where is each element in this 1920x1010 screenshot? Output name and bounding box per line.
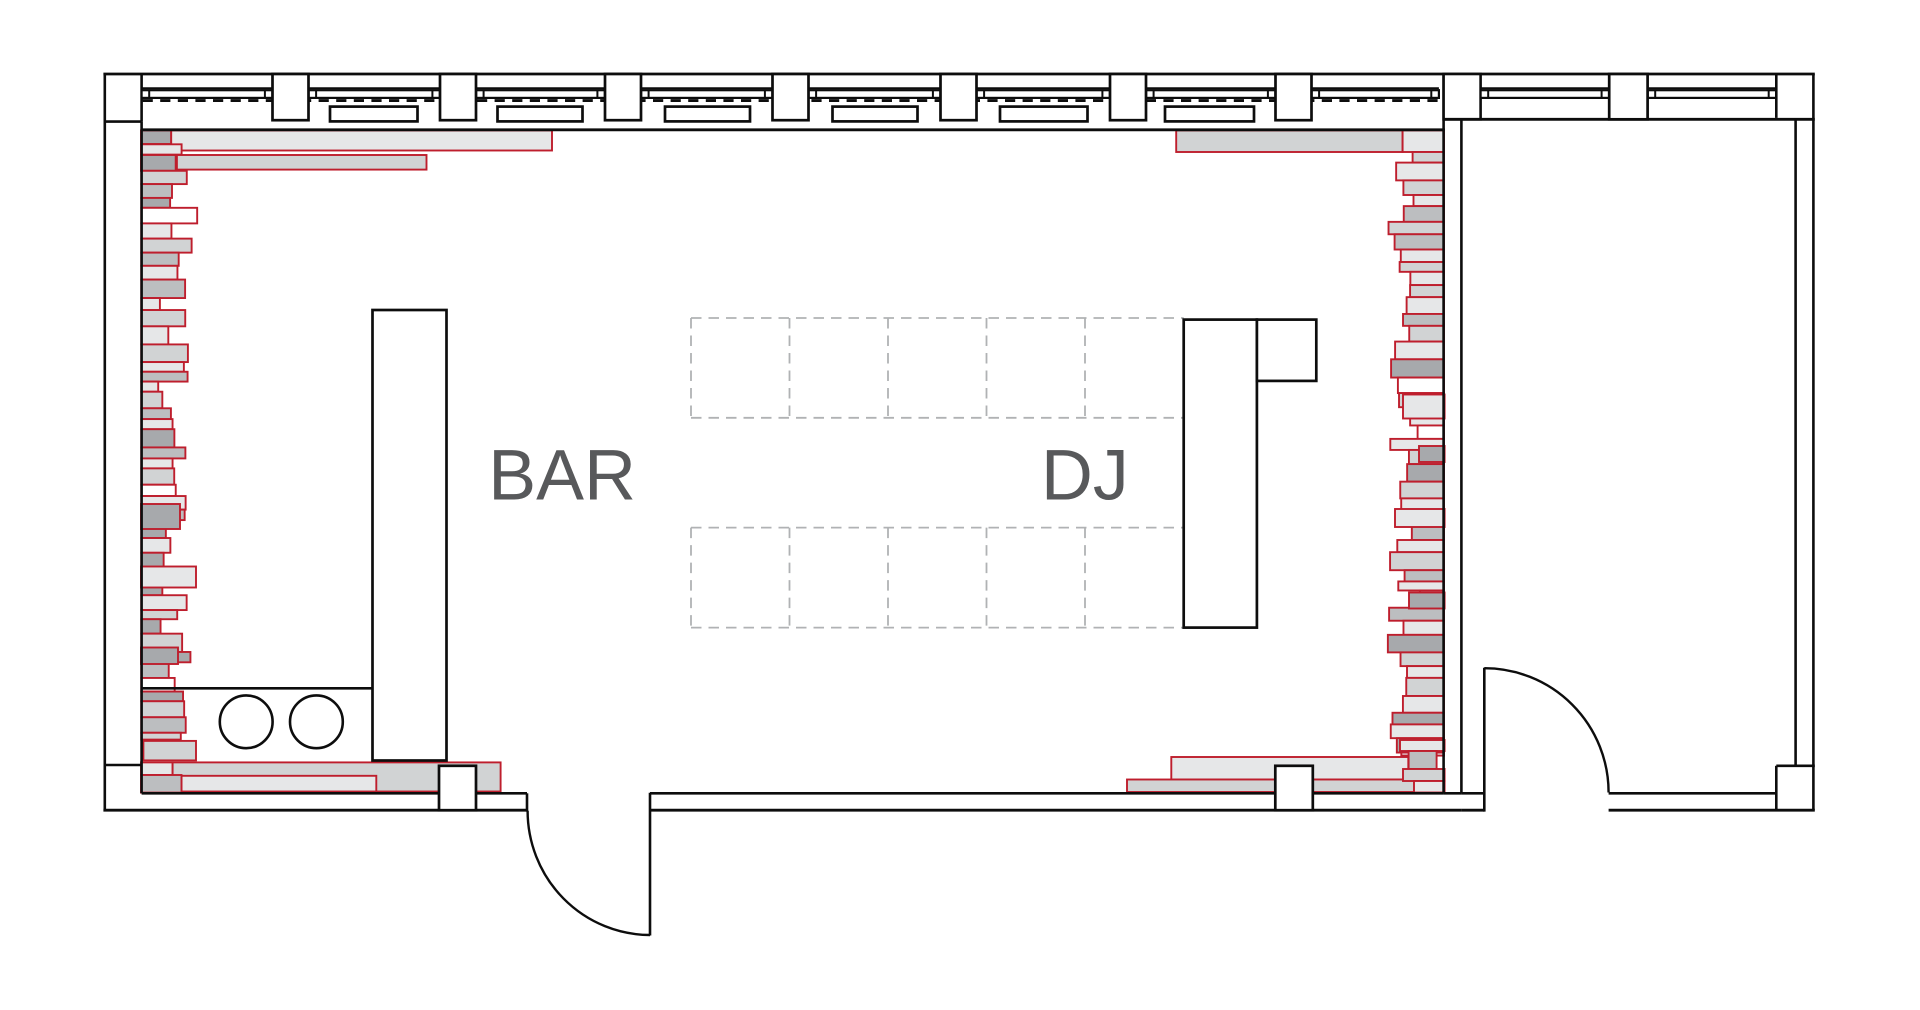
svg-text:BAR: BAR	[488, 436, 636, 516]
svg-text:DJ: DJ	[1041, 436, 1129, 516]
